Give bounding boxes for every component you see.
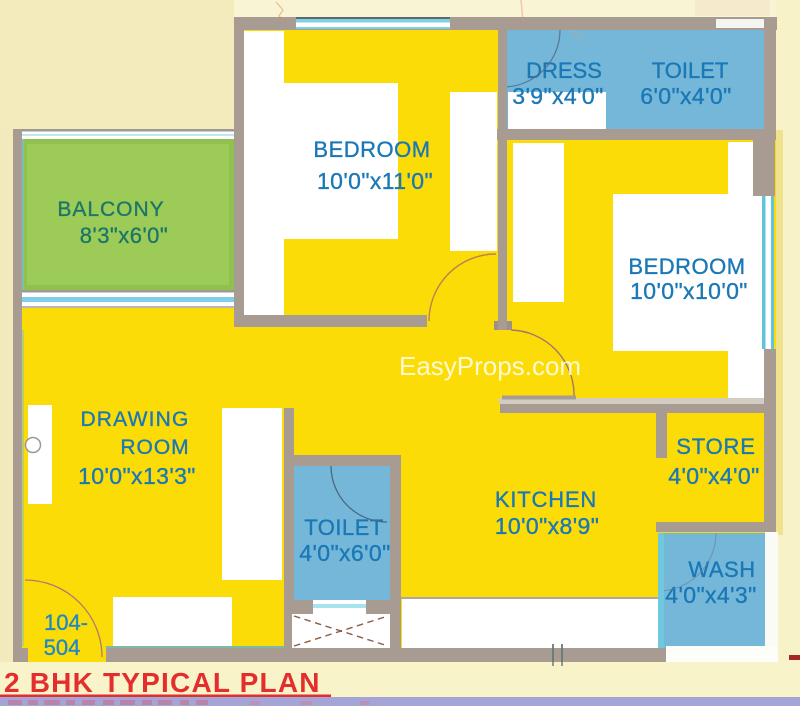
svg-text:3'9"x4'0": 3'9"x4'0" <box>512 83 603 109</box>
svg-text:TOILET: TOILET <box>304 515 384 540</box>
svg-text:4'0"x4'0": 4'0"x4'0" <box>668 463 759 489</box>
svg-text:KITCHEN: KITCHEN <box>495 487 597 512</box>
svg-text:EasyProps.com: EasyProps.com <box>399 351 581 381</box>
svg-text:BALCONY: BALCONY <box>57 198 164 221</box>
svg-text:2 BHK TYPICAL PLAN: 2 BHK TYPICAL PLAN <box>4 667 321 698</box>
svg-text:4'0"x4'3": 4'0"x4'3" <box>665 582 756 608</box>
svg-text:104-: 104- <box>44 610 88 635</box>
svg-text:ROOM: ROOM <box>120 436 189 459</box>
svg-text:10'0"x11'0": 10'0"x11'0" <box>317 168 433 194</box>
svg-text:DRESS: DRESS <box>526 58 602 83</box>
svg-text:10'0"x13'3": 10'0"x13'3" <box>78 463 196 489</box>
svg-text:STORE: STORE <box>676 434 755 459</box>
svg-text:10'0"x10'0": 10'0"x10'0" <box>630 278 748 304</box>
svg-text:BEDROOM: BEDROOM <box>313 137 430 162</box>
svg-text:WASH: WASH <box>688 557 755 582</box>
svg-text:10'0"x8'9": 10'0"x8'9" <box>495 513 600 539</box>
svg-text:4'0"x6'0": 4'0"x6'0" <box>299 540 390 566</box>
svg-text:TOILET: TOILET <box>652 58 729 83</box>
svg-text:504: 504 <box>44 635 81 660</box>
svg-text:6'0"x4'0": 6'0"x4'0" <box>640 83 731 109</box>
svg-text:8'3"x6'0": 8'3"x6'0" <box>80 223 168 248</box>
svg-text:DRAWING: DRAWING <box>80 408 189 431</box>
svg-text:BEDROOM: BEDROOM <box>628 254 745 279</box>
